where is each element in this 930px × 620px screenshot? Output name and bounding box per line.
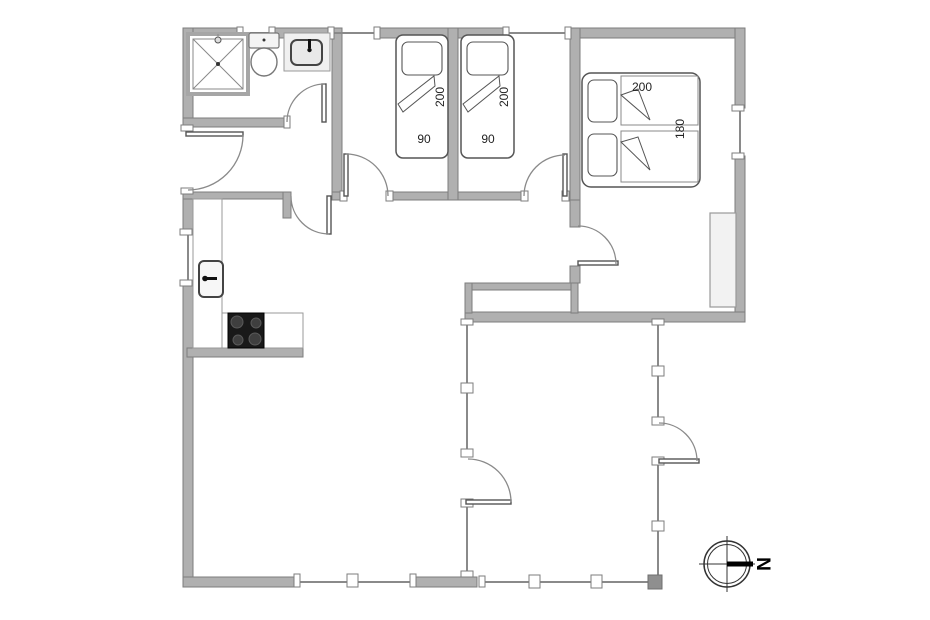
door-bedroom-1 (344, 154, 388, 196)
mullion (347, 574, 358, 587)
pillow (588, 134, 617, 176)
burner (233, 335, 243, 345)
mullion (591, 575, 602, 588)
cap (732, 153, 744, 159)
floor-plan-page: 200 90 200 90 200 180 N (0, 0, 930, 620)
glass-partitions (467, 322, 662, 589)
door-bathroom (287, 84, 326, 122)
bed-width-label: 180 (673, 119, 687, 139)
compass-north-label: N (752, 557, 773, 571)
door-panel (344, 154, 348, 196)
mullion (652, 521, 664, 531)
cap (180, 229, 192, 235)
jamb (181, 188, 193, 194)
kitchen-counter-edge (187, 348, 303, 357)
wall-double-bedroom-west-3 (570, 266, 580, 283)
bathroom-faucet (308, 39, 311, 48)
door-swing-arc (287, 84, 325, 122)
door-swing-arc (524, 155, 565, 196)
wall-left-3 (183, 283, 193, 587)
cap (461, 449, 473, 457)
wall-top-4 (568, 28, 745, 38)
mullion (652, 366, 664, 376)
cap (652, 417, 664, 425)
wall-double-bedroom-west-2 (570, 200, 580, 227)
bathroom-sink (291, 40, 322, 65)
kitchen-faucet-knob (202, 276, 208, 282)
wall-bedroom-south (465, 312, 745, 322)
pillow (588, 80, 617, 122)
kitchen (193, 199, 303, 348)
door-swing-arc (346, 154, 388, 196)
door-panel (578, 261, 618, 265)
bed-length-label: 200 (497, 87, 511, 107)
toilet-bowl (251, 48, 277, 76)
cap (732, 105, 744, 111)
wall-stub-hall (283, 192, 291, 218)
toilet-flush-button (263, 39, 266, 42)
single-bed-1: 200 90 (396, 35, 448, 158)
door-entrance (186, 132, 243, 190)
wall-right-1 (735, 28, 745, 108)
wall-between-single-bedrooms (448, 28, 458, 200)
door-terrace-east (659, 423, 699, 463)
mullion (461, 383, 473, 393)
door-panel (322, 84, 326, 122)
shower-head-icon (215, 37, 221, 43)
door-panel (327, 196, 331, 234)
cap (479, 576, 485, 587)
door-panel (563, 154, 567, 196)
single-bed-2: 200 90 (461, 35, 514, 158)
bathroom (188, 33, 330, 94)
cap (652, 319, 664, 325)
compass-north-icon: N (699, 536, 773, 592)
door-terrace-west (466, 459, 511, 504)
wall-bottom-1 (183, 577, 297, 587)
door-panel (466, 500, 511, 504)
cap (374, 27, 380, 39)
door-swing-arc (659, 423, 697, 461)
bed-length-label: 200 (433, 87, 447, 107)
wall-bathroom-south (183, 118, 287, 127)
jamb (181, 125, 193, 131)
bed-length-label: 200 (632, 80, 652, 94)
mullion (529, 575, 540, 588)
cap (180, 280, 192, 286)
bed-width-label: 90 (481, 132, 495, 146)
wall-double-bedroom-west-1 (570, 28, 580, 200)
pillow (402, 42, 442, 75)
door-swing-arc (578, 226, 616, 264)
door-hall-living (291, 196, 331, 234)
burner (251, 318, 261, 328)
door-swing-arc (468, 459, 511, 502)
glass-corner-post (648, 575, 662, 589)
cap (461, 571, 473, 577)
door-bedroom-2 (524, 154, 567, 196)
closet-living-right (571, 283, 578, 313)
bed-width-label: 90 (417, 132, 431, 146)
wall-bottom-2 (413, 577, 477, 587)
burner (249, 333, 261, 345)
closet-living-top (465, 283, 578, 290)
closet-living-left (465, 283, 472, 313)
cap (410, 574, 416, 587)
double-bed: 200 180 (582, 73, 700, 187)
door-double-bedroom (578, 226, 618, 265)
wall-kitchen-north (183, 192, 287, 199)
floor-plan-canvas: 200 90 200 90 200 180 N (0, 0, 930, 620)
bathroom-faucet-knob (307, 48, 311, 52)
cap (565, 27, 571, 39)
door-panel (186, 132, 243, 136)
door-panel (659, 459, 699, 463)
pillow (467, 42, 508, 75)
compass-north-pointer (727, 562, 753, 567)
wall-bathroom-east (332, 28, 342, 200)
cap (294, 574, 300, 587)
door-swing-arc (188, 135, 243, 190)
wardrobe-double-bedroom (710, 213, 736, 307)
door-swing-arc (291, 196, 329, 234)
jamb (386, 191, 393, 201)
cap (461, 319, 473, 325)
burner (231, 316, 243, 328)
shower-drain (216, 62, 220, 66)
